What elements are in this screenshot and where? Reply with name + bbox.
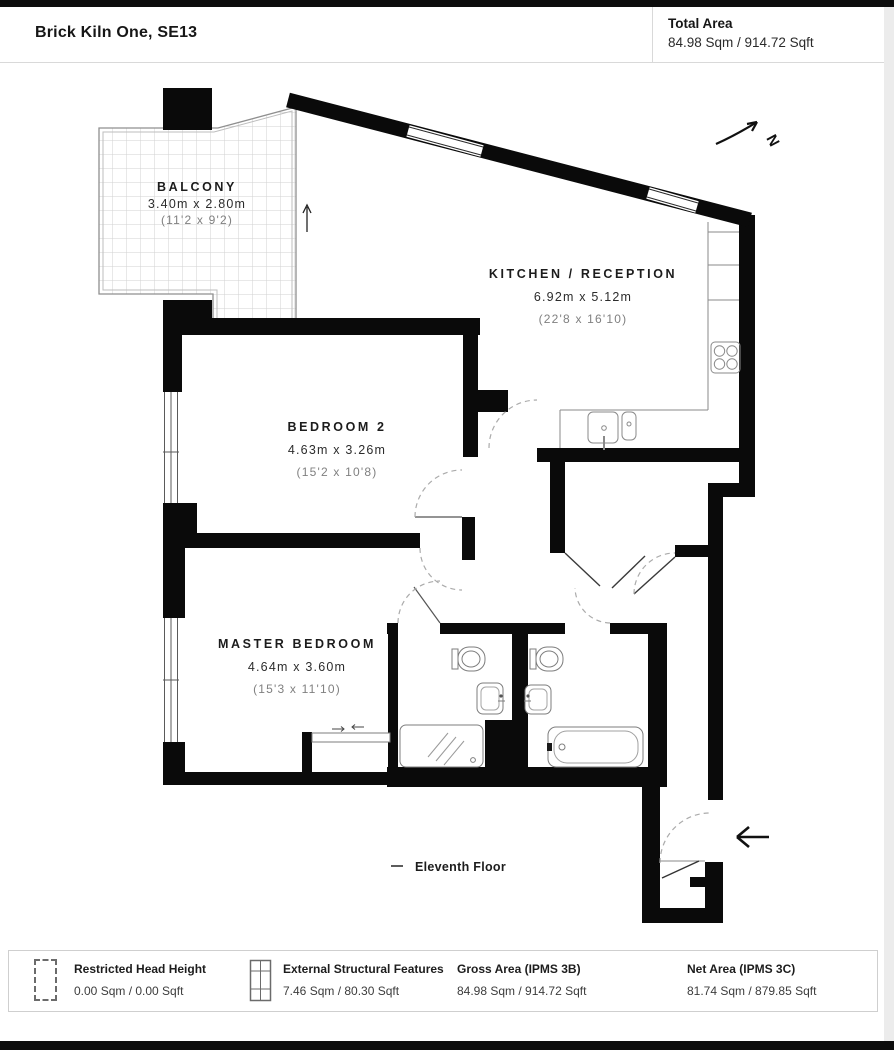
balcony-door-arrow-icon bbox=[303, 205, 311, 232]
sloped-wall bbox=[288, 100, 750, 220]
bathtub-icon bbox=[547, 727, 643, 767]
legend-label: External Structural Features bbox=[283, 962, 444, 976]
wardrobe-icon bbox=[312, 725, 390, 743]
legend-value: 7.46 Sqm / 80.30 Sqft bbox=[283, 984, 399, 998]
hob-icon bbox=[711, 342, 740, 373]
bottom-black-bar bbox=[0, 1041, 894, 1050]
entrance-arrow-icon bbox=[737, 827, 769, 847]
legend-value: 0.00 Sqm / 0.00 Sqft bbox=[74, 984, 183, 998]
shower-icon bbox=[400, 725, 483, 767]
floor-label: Eleventh Floor bbox=[415, 860, 506, 874]
dashed-rect-icon bbox=[34, 959, 57, 1001]
room-label-master-bedroom: MASTER BEDROOM bbox=[218, 637, 376, 651]
legend-label: Restricted Head Height bbox=[74, 962, 206, 976]
legend-net-area: Net Area (IPMS 3C) 81.74 Sqm / 879.85 Sq… bbox=[687, 951, 877, 1011]
legend-value: 84.98 Sqm / 914.72 Sqft bbox=[457, 984, 586, 998]
north-arrow-icon: N bbox=[716, 122, 783, 149]
floorplan-svg: N BALCONY 3.40m x 2.80m (11'2 x 9'2) KIT… bbox=[0, 0, 894, 1050]
hatched-rect-icon bbox=[249, 959, 273, 1003]
legend-restricted-head-height: Restricted Head Height 0.00 Sqm / 0.00 S… bbox=[34, 951, 234, 1011]
room-label-bedroom-2: BEDROOM 2 bbox=[287, 420, 386, 434]
room-dims-master-bedroom: 4.64m x 3.60m bbox=[248, 660, 346, 674]
toilet-icon-bathroom bbox=[530, 647, 563, 671]
legend-bar: Restricted Head Height 0.00 Sqm / 0.00 S… bbox=[8, 950, 878, 1012]
floorplan-page: Brick Kiln One, SE13 Total Area 84.98 Sq… bbox=[0, 0, 894, 1050]
room-label-kitchen-reception: KITCHEN / RECEPTION bbox=[489, 267, 677, 281]
room-dims-bedroom-2: 4.63m x 3.26m bbox=[288, 443, 386, 457]
room-dims-imperial-bedroom-2: (15'2 x 10'8) bbox=[297, 465, 378, 479]
basin-icon-bathroom bbox=[524, 685, 551, 714]
room-dims-kitchen-reception: 6.92m x 5.12m bbox=[534, 290, 632, 304]
basin-icon-ensuite bbox=[477, 683, 505, 714]
toilet-icon-ensuite bbox=[452, 647, 485, 671]
room-dims-balcony: 3.40m x 2.80m bbox=[148, 197, 246, 211]
legend-value: 81.74 Sqm / 879.85 Sqft bbox=[687, 984, 816, 998]
room-label-balcony: BALCONY bbox=[157, 180, 237, 194]
legend-gross-area: Gross Area (IPMS 3B) 84.98 Sqm / 914.72 … bbox=[457, 951, 667, 1011]
kitchen-counter bbox=[560, 222, 739, 448]
kitchen-sink-icon bbox=[588, 412, 636, 450]
room-dims-imperial-balcony: (11'2 x 9'2) bbox=[161, 213, 233, 227]
floor-indicator: Eleventh Floor bbox=[391, 860, 506, 874]
room-dims-imperial-kitchen-reception: (22'8 x 16'10) bbox=[539, 312, 628, 326]
north-label: N bbox=[762, 132, 782, 150]
room-dims-imperial-master-bedroom: (15'3 x 11'10) bbox=[253, 682, 341, 696]
legend-label: Net Area (IPMS 3C) bbox=[687, 962, 795, 976]
legend-label: Gross Area (IPMS 3B) bbox=[457, 962, 581, 976]
legend-external-structural-features: External Structural Features 7.46 Sqm / … bbox=[249, 951, 454, 1011]
